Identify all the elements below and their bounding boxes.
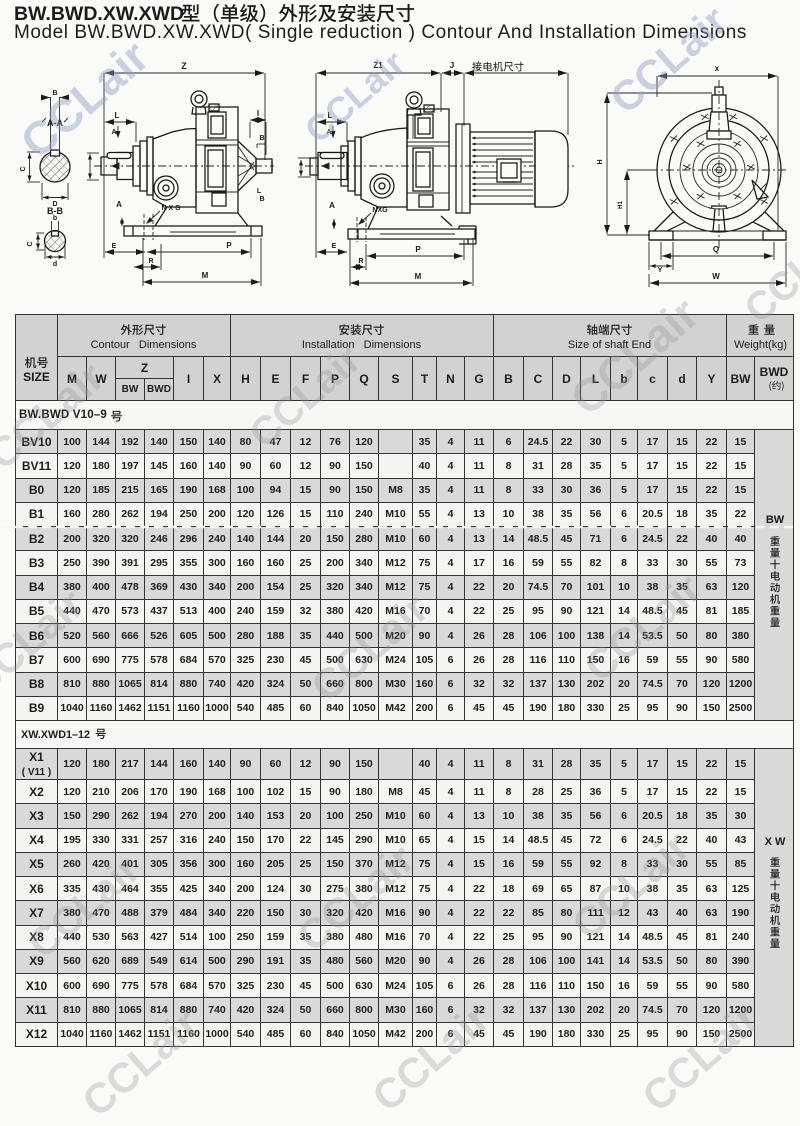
svg-text:SIZE: SIZE: [23, 370, 50, 384]
svg-text:Installation Dimensions: Installation Dimensions: [302, 339, 422, 351]
svg-text:Contour Dimensions: Contour Dimensions: [91, 339, 197, 351]
svg-text:Weight(kg): Weight(kg): [734, 339, 787, 351]
svg-text:BW: BW: [766, 514, 785, 526]
svg-text:Size of shaft End: Size of shaft End: [568, 339, 651, 351]
svg-text:X W: X W: [765, 836, 786, 848]
